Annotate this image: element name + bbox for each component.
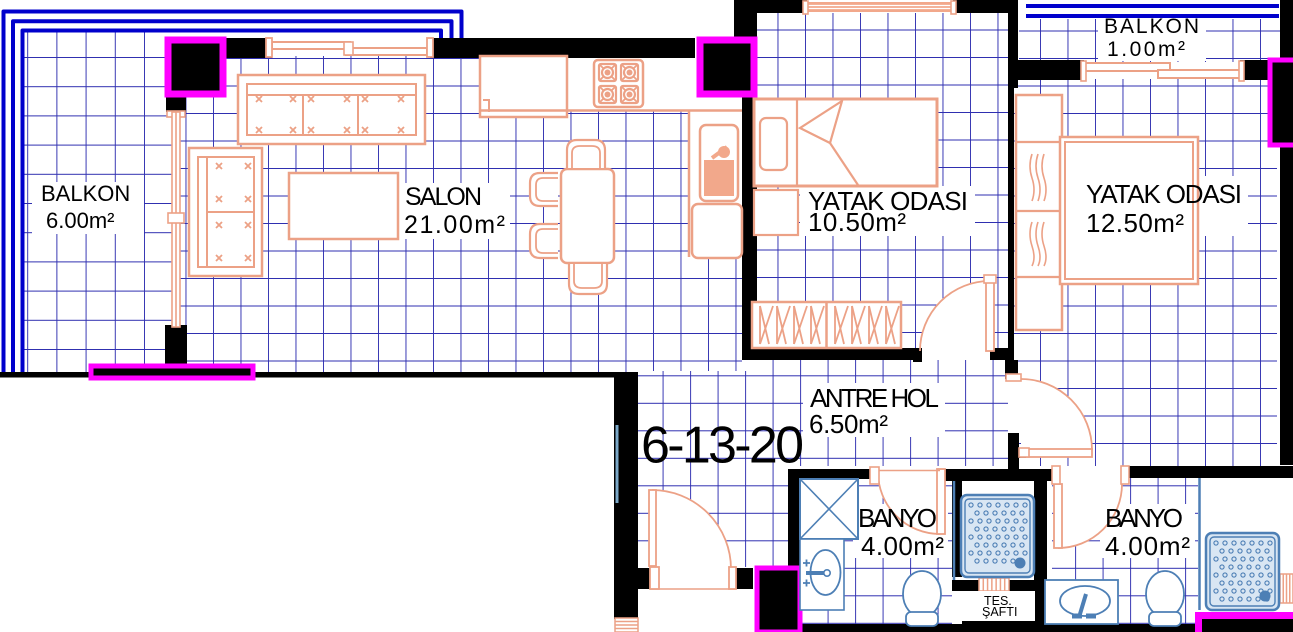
svg-text:21.00m²: 21.00m² bbox=[404, 211, 505, 239]
svg-text:4.00m²: 4.00m² bbox=[861, 531, 944, 561]
svg-text:BANYO: BANYO bbox=[858, 503, 937, 533]
svg-text:BANYO: BANYO bbox=[1105, 503, 1183, 533]
svg-text:10.50m²: 10.50m² bbox=[808, 207, 906, 237]
svg-text:6.00m²: 6.00m² bbox=[46, 208, 114, 233]
svg-text:6-13-20: 6-13-20 bbox=[641, 417, 804, 475]
svg-text:ŞAFTI: ŞAFTI bbox=[982, 605, 1017, 619]
svg-text:SALON: SALON bbox=[405, 183, 482, 211]
svg-text:BALKON: BALKON bbox=[41, 181, 130, 206]
svg-text:4.00m²: 4.00m² bbox=[1105, 531, 1190, 561]
svg-text:YATAK ODASI: YATAK ODASI bbox=[1086, 179, 1242, 209]
svg-text:12.50m²: 12.50m² bbox=[1086, 208, 1184, 238]
svg-text:6.50m²: 6.50m² bbox=[809, 409, 888, 439]
